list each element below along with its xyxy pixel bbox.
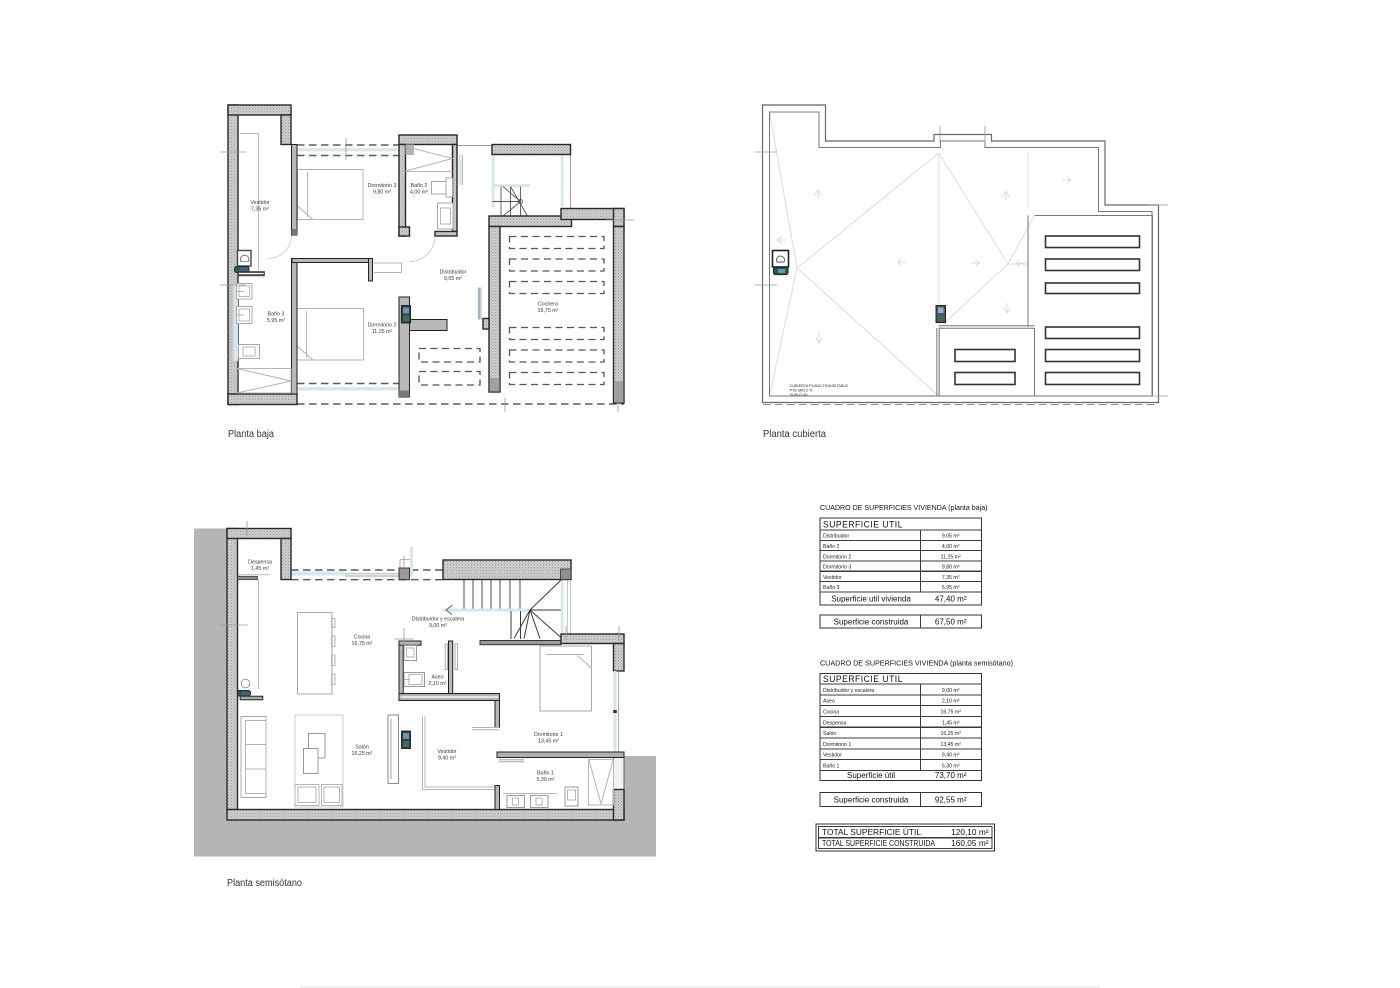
svg-text:Distribuidor: Distribuidor (440, 270, 467, 276)
svg-text:Salón: Salón (823, 731, 836, 737)
svg-text:4,00 m²: 4,00 m² (942, 544, 960, 550)
svg-text:5,95 m²: 5,95 m² (267, 318, 285, 324)
svg-text:9,80 m²: 9,80 m² (942, 565, 960, 571)
svg-text:Dormitorio 1: Dormitorio 1 (534, 732, 563, 738)
svg-text:Vestidor: Vestidor (823, 575, 842, 581)
svg-text:16,25 m²: 16,25 m² (940, 731, 961, 737)
svg-text:Distribuidor y escalera: Distribuidor y escalera (412, 617, 464, 623)
svg-text:Aseo: Aseo (431, 675, 443, 681)
svg-text:9,00 m²: 9,00 m² (942, 688, 960, 694)
svg-text:Cochera: Cochera (538, 302, 558, 308)
svg-text:Dormitorio 2: Dormitorio 2 (368, 323, 397, 329)
svg-text:Baño 3: Baño 3 (268, 312, 285, 318)
svg-text:SUPERFICIE UTIL: SUPERFICIE UTIL (823, 674, 903, 685)
svg-text:SUELO 40: SUELO 40 (790, 393, 808, 397)
svg-text:CUADRO DE SUPERFICIES VIVIENDA: CUADRO DE SUPERFICIES VIVIENDA (planta b… (820, 503, 988, 512)
svg-text:Vestidor: Vestidor (250, 200, 269, 206)
svg-text:Superficie util vivienda: Superficie util vivienda (831, 595, 911, 604)
svg-text:Vestidor: Vestidor (437, 749, 456, 755)
svg-text:Distribuidor y escalera: Distribuidor y escalera (823, 688, 874, 694)
svg-text:SUPERFICIE UTIL: SUPERFICIE UTIL (823, 520, 903, 531)
svg-text:5,30 m²: 5,30 m² (537, 777, 555, 783)
svg-text:120,10 m²: 120,10 m² (951, 827, 989, 837)
svg-text:11,25 m²: 11,25 m² (372, 329, 393, 335)
svg-text:1,45 m²: 1,45 m² (251, 566, 269, 572)
svg-text:9,80 m²: 9,80 m² (373, 190, 391, 196)
svg-text:2,10 m²: 2,10 m² (942, 699, 960, 705)
svg-text:Dormitorio 3: Dormitorio 3 (823, 565, 851, 571)
svg-text:16,75 m²: 16,75 m² (940, 710, 961, 716)
svg-text:67,50 m²: 67,50 m² (935, 618, 967, 627)
svg-text:9,05 m²: 9,05 m² (444, 276, 462, 282)
svg-text:13,45 m²: 13,45 m² (538, 739, 559, 745)
svg-text:Cocina: Cocina (354, 635, 371, 641)
svg-text:Baño 2: Baño 2 (411, 183, 428, 189)
svg-text:2,10 m²: 2,10 m² (429, 681, 447, 687)
svg-text:9,05 m²: 9,05 m² (942, 534, 960, 540)
svg-text:Distribuidor: Distribuidor (823, 534, 850, 540)
svg-text:5,95 m²: 5,95 m² (942, 585, 960, 591)
svg-text:Cocina: Cocina (823, 710, 839, 716)
svg-text:16,25 m²: 16,25 m² (352, 751, 373, 757)
svg-text:13,45 m²: 13,45 m² (940, 742, 961, 748)
svg-text:Despensa: Despensa (248, 560, 272, 566)
svg-text:TOTAL SUPERFICIE ÚTIL: TOTAL SUPERFICIE ÚTIL (822, 827, 921, 837)
svg-text:7,35 m²: 7,35 m² (251, 207, 269, 213)
svg-text:4,00 m²: 4,00 m² (410, 190, 428, 196)
svg-text:Planta cubierta: Planta cubierta (763, 429, 827, 440)
svg-text:TOTAL SUPERFICIE CONSTRUIDA: TOTAL SUPERFICIE CONSTRUIDA (822, 838, 935, 848)
svg-text:16,75 m²: 16,75 m² (352, 641, 373, 647)
svg-text:Vestidor: Vestidor (823, 753, 842, 759)
svg-text:9,40 m²: 9,40 m² (942, 753, 960, 759)
svg-text:160,05 m²: 160,05 m² (951, 838, 989, 848)
svg-text:9,40 m²: 9,40 m² (438, 756, 456, 762)
svg-text:1,45 m²: 1,45 m² (942, 720, 960, 726)
svg-text:Superficie útil: Superficie útil (847, 771, 895, 780)
svg-text:Dormitorio 1: Dormitorio 1 (823, 742, 851, 748)
svg-text:Baño 3: Baño 3 (823, 585, 840, 591)
svg-text:5,30 m²: 5,30 m² (942, 764, 960, 770)
svg-text:Planta semisótano: Planta semisótano (227, 878, 303, 889)
svg-text:Despensa: Despensa (823, 720, 846, 726)
svg-text:Aseo: Aseo (823, 699, 835, 705)
svg-text:Dormitorio 2: Dormitorio 2 (823, 554, 851, 560)
svg-text:Dormitorio 3: Dormitorio 3 (368, 183, 397, 189)
svg-text:Superficie construida: Superficie construida (834, 796, 909, 805)
svg-text:Salón: Salón (355, 745, 369, 751)
svg-text:CUADRO DE SUPERFICIES VIVIENDA: CUADRO DE SUPERFICIES VIVIENDA (planta s… (820, 659, 1013, 668)
svg-text:92,55 m²: 92,55 m² (935, 796, 967, 805)
svg-text:Baño 1: Baño 1 (537, 771, 554, 777)
svg-text:Planta baja: Planta baja (228, 429, 275, 440)
svg-text:47,40 m²: 47,40 m² (935, 595, 967, 604)
svg-text:7,35 m²: 7,35 m² (942, 575, 960, 581)
svg-text:CUBIERTA PLANA TRANSITABLE: CUBIERTA PLANA TRANSITABLE (790, 384, 849, 388)
svg-text:9,00 m²: 9,00 m² (429, 623, 447, 629)
svg-text:73,70 m²: 73,70 m² (935, 771, 967, 780)
svg-text:PTE MIN 2 %: PTE MIN 2 % (790, 389, 814, 393)
svg-text:Baño 1: Baño 1 (823, 764, 840, 770)
svg-text:Superficie construida: Superficie construida (834, 618, 909, 627)
svg-text:Baño 2: Baño 2 (823, 544, 840, 550)
svg-text:11,25 m²: 11,25 m² (941, 554, 961, 560)
svg-text:16,75 m²: 16,75 m² (538, 308, 559, 314)
